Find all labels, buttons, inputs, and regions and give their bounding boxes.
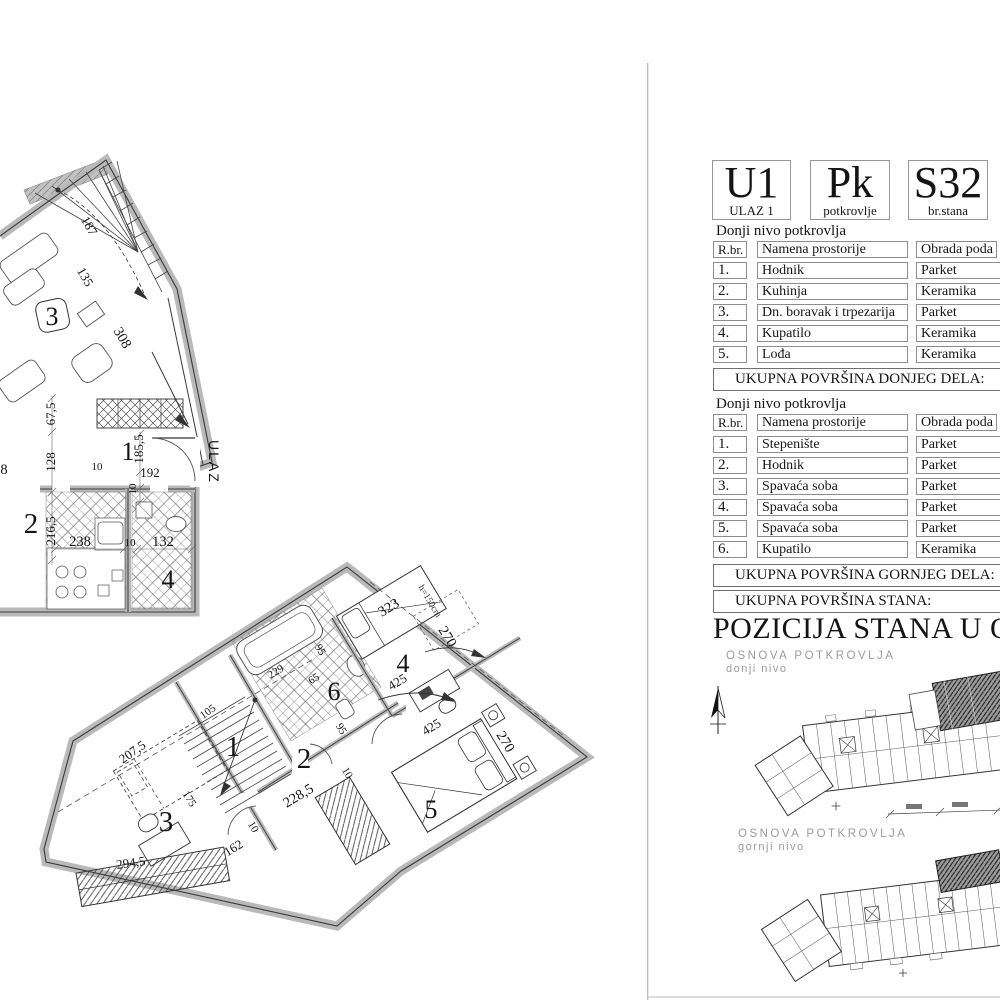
row-floor: Keramika bbox=[916, 325, 1000, 342]
row-num: 2. bbox=[713, 283, 747, 300]
row-room: Kupatilo bbox=[757, 541, 908, 558]
row-floor: Keramika bbox=[916, 283, 1000, 300]
row-room: Dn. boravak i trpezarija bbox=[757, 304, 908, 321]
total-upper-bar: UKUPNA POVRŠINA GORNJEG DELA: bbox=[713, 564, 1000, 587]
row-room: Hodnik bbox=[757, 457, 908, 474]
entrance-code: U1 bbox=[713, 162, 790, 204]
site-plan-title: OSNOVA POTKROVLJA bbox=[726, 650, 895, 663]
site-plan-caption-lower: OSNOVA POTKROVLJA donji nivo bbox=[726, 650, 895, 676]
row-room: Lođa bbox=[757, 346, 908, 363]
info-panel: U1 ULAZ 1 Pk potkrovlje S32 br.stana Don… bbox=[0, 0, 1000, 1000]
row-num: 3. bbox=[713, 478, 747, 495]
total-apartment-bar: UKUPNA POVRŠINA STANA: bbox=[713, 590, 1000, 613]
col-header-floor: Obrada poda bbox=[916, 414, 997, 431]
row-room: Spavaća soba bbox=[757, 478, 908, 495]
row-room: Stepenište bbox=[757, 436, 908, 453]
row-room: Hodnik bbox=[757, 262, 908, 279]
row-num: 4. bbox=[713, 325, 747, 342]
row-floor: Parket bbox=[916, 304, 1000, 321]
row-floor: Parket bbox=[916, 262, 1000, 279]
row-num: 1. bbox=[713, 262, 747, 279]
table-caption: Donji nivo potkrovlja bbox=[716, 223, 846, 239]
row-num: 5. bbox=[713, 346, 747, 363]
site-plan-subtitle: gornji nivo bbox=[738, 841, 907, 854]
row-floor: Parket bbox=[916, 520, 1000, 537]
floor-plan-sheet: 3 1 2 4 67,5 128 216,5 185,5 192 10 10 2… bbox=[0, 0, 1000, 1000]
site-plan-subtitle: donji nivo bbox=[726, 663, 895, 676]
level-code: Pk bbox=[811, 162, 889, 204]
row-num: 2. bbox=[713, 457, 747, 474]
row-floor: Parket bbox=[916, 436, 1000, 453]
col-header-num: R.br. bbox=[713, 414, 747, 431]
row-num: 6. bbox=[713, 541, 747, 558]
row-num: 5. bbox=[713, 520, 747, 537]
level-sublabel: potkrovlje bbox=[811, 204, 889, 218]
col-header-room: Namena prostorije bbox=[757, 414, 908, 431]
row-room: Spavaća soba bbox=[757, 499, 908, 516]
row-num: 3. bbox=[713, 304, 747, 321]
row-floor: Keramika bbox=[916, 346, 1000, 363]
row-floor: Parket bbox=[916, 457, 1000, 474]
col-header-room: Namena prostorije bbox=[757, 241, 908, 258]
row-floor: Keramika bbox=[916, 541, 1000, 558]
position-title: POZICIJA STANA U O bbox=[713, 612, 1000, 646]
apartment-id-box: S32 br.stana bbox=[908, 160, 988, 220]
row-room: Spavaća soba bbox=[757, 520, 908, 537]
row-floor: Parket bbox=[916, 478, 1000, 495]
level-id-box: Pk potkrovlje bbox=[810, 160, 890, 220]
row-room: Kupatilo bbox=[757, 325, 908, 342]
col-header-floor: Obrada poda bbox=[916, 241, 997, 258]
site-plan-caption-upper: OSNOVA POTKROVLJA gornji nivo bbox=[738, 828, 907, 854]
row-floor: Parket bbox=[916, 499, 1000, 516]
total-lower-bar: UKUPNA POVRŠINA DONJEG DELA: bbox=[713, 368, 1000, 391]
entrance-id-box: U1 ULAZ 1 bbox=[712, 160, 791, 220]
row-num: 1. bbox=[713, 436, 747, 453]
table-caption: Donji nivo potkrovlja bbox=[716, 396, 846, 412]
row-room: Kuhinja bbox=[757, 283, 908, 300]
apartment-code: S32 bbox=[909, 162, 987, 204]
col-header-num: R.br. bbox=[713, 241, 747, 258]
row-num: 4. bbox=[713, 499, 747, 516]
site-plan-title: OSNOVA POTKROVLJA bbox=[738, 828, 907, 841]
